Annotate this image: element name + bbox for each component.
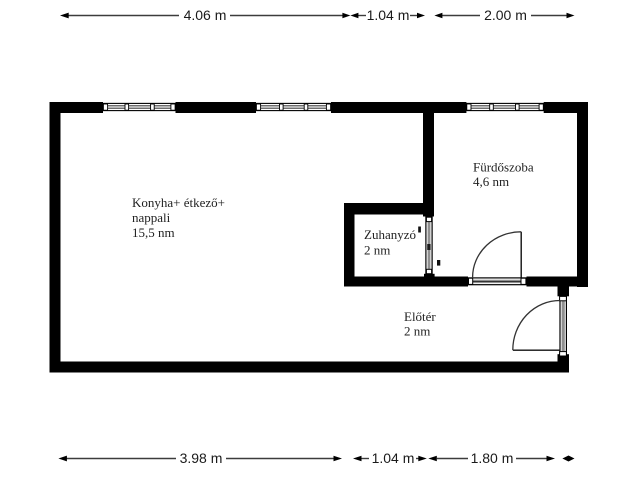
svg-text:Előtér: Előtér [404,309,436,324]
svg-text:3.98 m: 3.98 m [180,450,223,466]
svg-text:4,6 nm: 4,6 nm [473,174,509,189]
svg-text:Konyha+ étkező+: Konyha+ étkező+ [132,195,225,210]
svg-text:1.04 m: 1.04 m [372,450,415,466]
svg-text:Fürdőszoba: Fürdőszoba [473,160,534,175]
svg-text:4.06 m: 4.06 m [184,7,227,23]
svg-text:Zuhanyzó: Zuhanyzó [364,227,416,242]
svg-text:15,5 nm: 15,5 nm [132,225,175,240]
svg-text:nappali: nappali [132,210,171,225]
svg-text:1.04 m: 1.04 m [367,7,410,23]
svg-text:1.80 m: 1.80 m [471,450,514,466]
svg-text:2 nm: 2 nm [404,324,430,339]
svg-text:2 nm: 2 nm [364,243,390,258]
svg-text:2.00 m: 2.00 m [484,7,527,23]
